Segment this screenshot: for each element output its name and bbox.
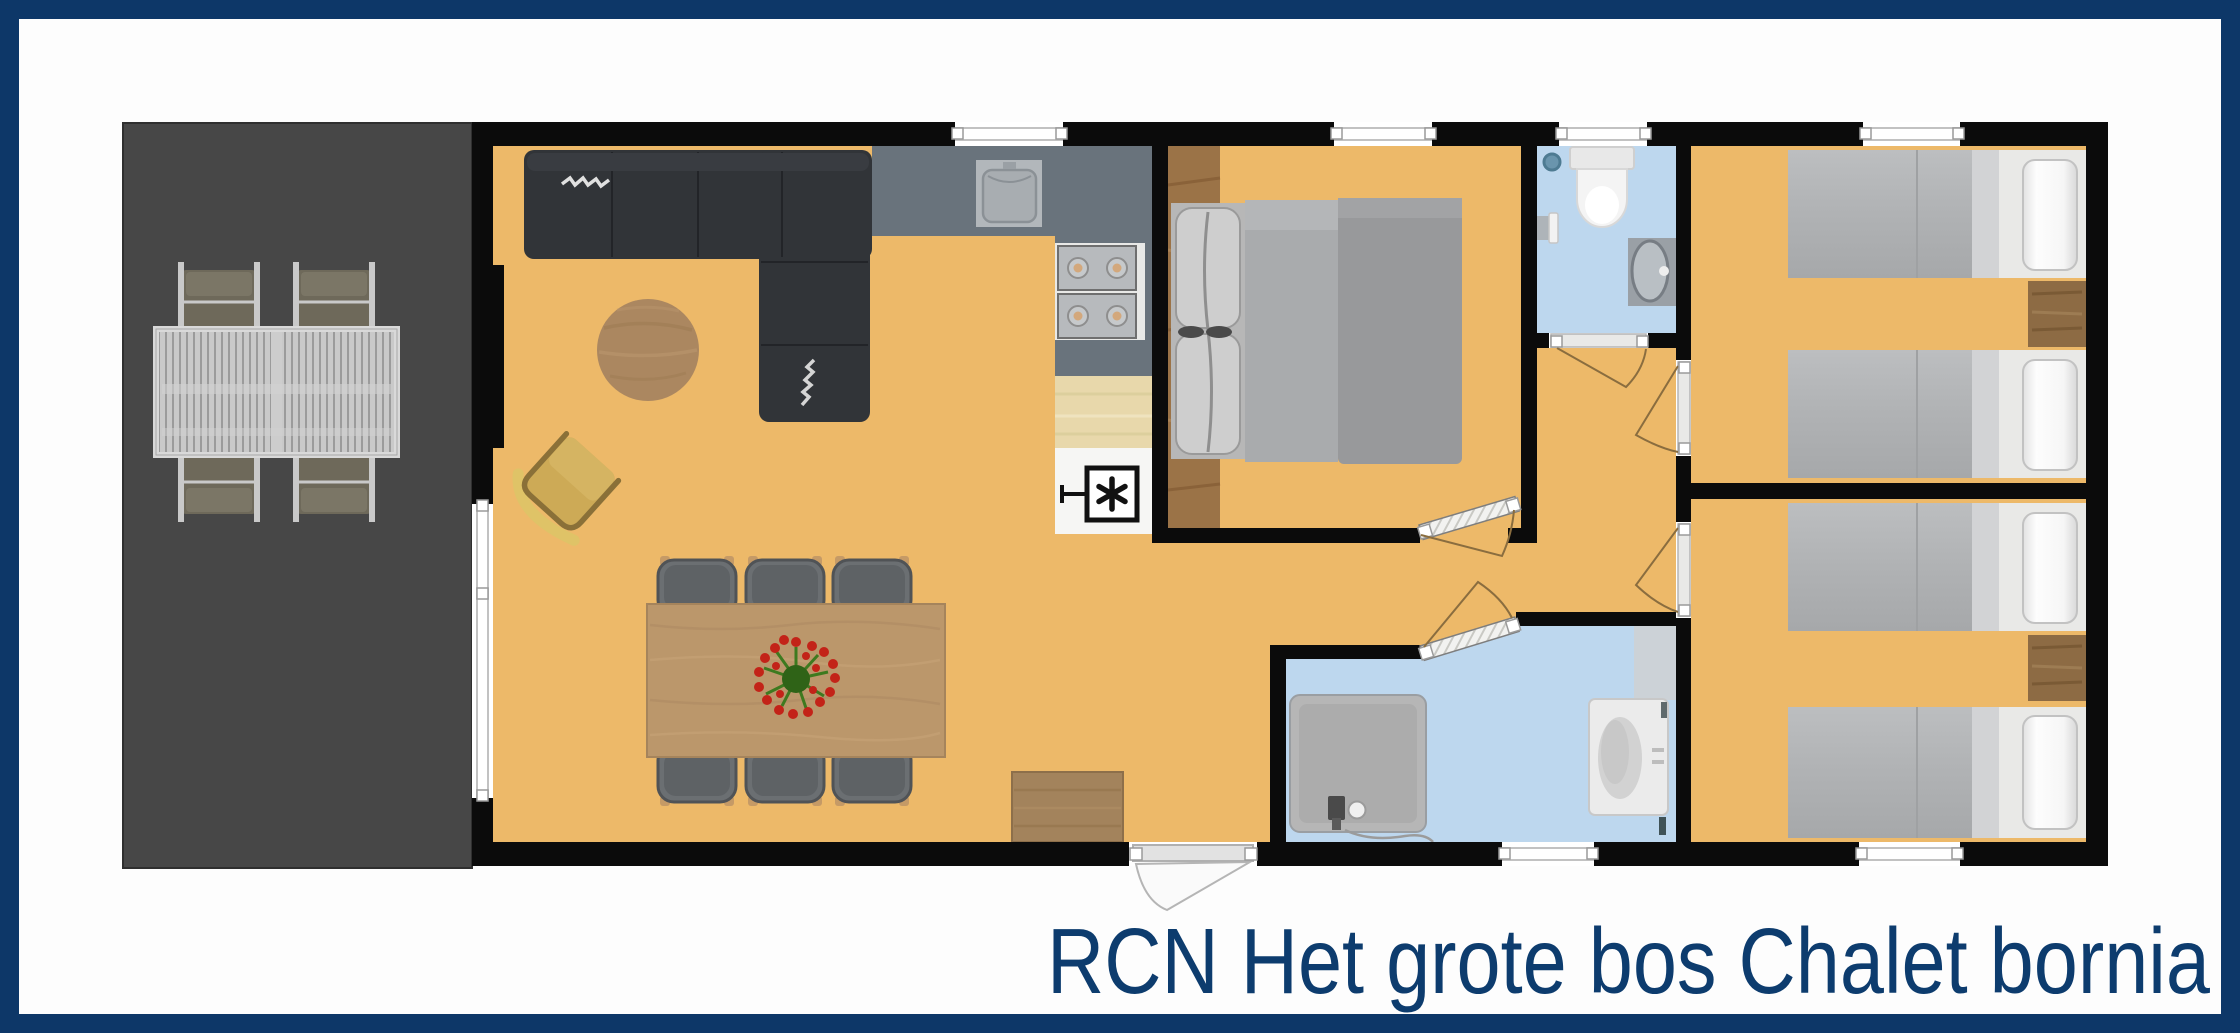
svg-text:RCN Het grote bos Chalet borni: RCN Het grote bos Chalet bornia — [1047, 909, 2210, 1013]
